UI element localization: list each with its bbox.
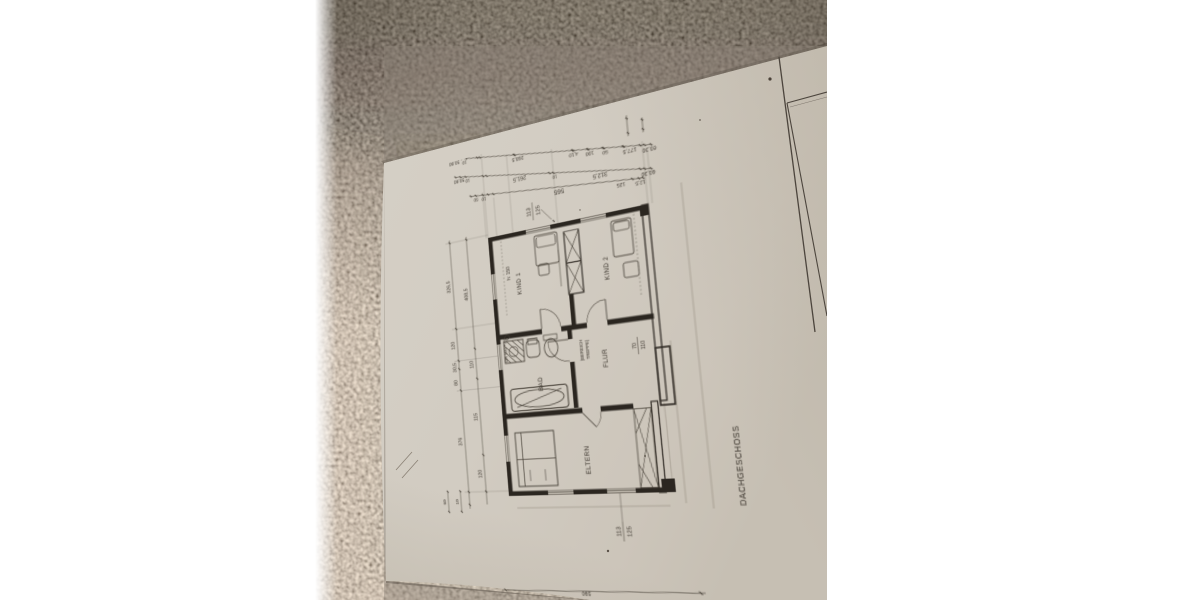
svg-text:h: 150: h: 150: [505, 265, 512, 281]
svg-text:50: 50: [474, 197, 479, 203]
svg-text:70: 70: [631, 342, 638, 350]
svg-text:125: 125: [615, 181, 625, 190]
svg-text:ELTERN: ELTERN: [583, 445, 593, 474]
svg-text:120: 120: [450, 341, 456, 351]
svg-text:113: 113: [615, 526, 623, 537]
svg-text:10: 10: [455, 500, 460, 505]
svg-text:261,5: 261,5: [512, 174, 526, 184]
svg-text:KIND 2: KIND 2: [602, 256, 612, 281]
svg-text:10: 10: [465, 178, 470, 184]
svg-text:TREPPE): TREPPE): [584, 339, 591, 359]
svg-text:590: 590: [581, 590, 591, 597]
svg-text:125: 125: [626, 526, 634, 537]
svg-text:10: 10: [482, 196, 487, 202]
svg-text:10: 10: [462, 159, 467, 165]
svg-text:50,60: 50,60: [453, 177, 465, 186]
svg-text:120: 120: [477, 469, 483, 479]
svg-text:4,10: 4,10: [569, 151, 579, 158]
svg-text:50: 50: [602, 149, 608, 156]
svg-text:408,5: 408,5: [463, 287, 469, 301]
svg-text:10: 10: [552, 174, 557, 180]
svg-text:125: 125: [534, 204, 541, 215]
svg-text:113: 113: [525, 207, 532, 218]
svg-text:100: 100: [584, 149, 594, 158]
svg-text:312,5: 312,5: [592, 170, 608, 180]
svg-text:FLUR: FLUR: [601, 348, 611, 368]
svg-text:326,5: 326,5: [445, 280, 451, 294]
svg-text:110: 110: [468, 360, 474, 369]
svg-text:60,30: 60,30: [640, 168, 656, 178]
svg-text:80: 80: [453, 379, 459, 386]
svg-text:376: 376: [457, 436, 463, 446]
svg-text:60,30: 60,30: [641, 144, 657, 154]
svg-text:50: 50: [443, 500, 448, 505]
svg-text:12,5: 12,5: [635, 178, 646, 186]
svg-text:268,5: 268,5: [511, 154, 524, 163]
svg-text:115: 115: [473, 412, 479, 421]
svg-text:KIND 1: KIND 1: [515, 272, 524, 295]
svg-text:DACHGESCHOSS: DACHGESCHOSS: [732, 425, 750, 506]
svg-text:110: 110: [639, 339, 647, 350]
svg-text:30,5: 30,5: [452, 362, 458, 373]
